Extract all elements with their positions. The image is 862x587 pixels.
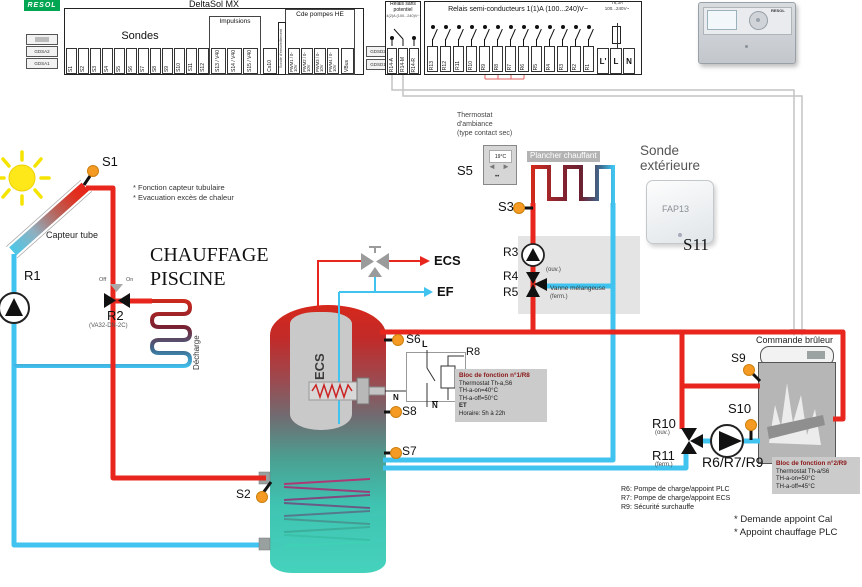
electric-heating-element bbox=[309, 378, 406, 404]
footnote-line: * Demande appoint Cal bbox=[734, 513, 837, 526]
s7-label: S7 bbox=[402, 445, 417, 458]
r2-label: R2 bbox=[107, 309, 124, 323]
tank-heat-exchanger-coil bbox=[284, 479, 370, 546]
s10-label: S10 bbox=[728, 402, 751, 416]
relay-group-bracket bbox=[485, 75, 524, 79]
charge-pump-label: R6/R7/R9 bbox=[702, 455, 763, 470]
relay-legend: R6: Pompe de charge/appoint PLCR7: Pompe… bbox=[621, 486, 730, 512]
ef-label: EF bbox=[437, 285, 454, 299]
r5-label: R5 bbox=[503, 286, 518, 299]
s1-label: S1 bbox=[102, 155, 118, 169]
floor-heating-coil bbox=[533, 167, 613, 207]
r8-l-label: L bbox=[422, 340, 428, 350]
r4-note: (ouv.) bbox=[546, 267, 561, 274]
r14-changeover-icon bbox=[391, 29, 416, 46]
legend-line: R6: Pompe de charge/appoint PLC bbox=[621, 486, 730, 495]
note-line: * Evacuation excès de chaleur bbox=[133, 194, 234, 202]
r4-r5-mixing-valve-icon bbox=[526, 272, 547, 297]
s5-label: S5 bbox=[457, 164, 473, 178]
r10-note: (ouv.) bbox=[655, 430, 670, 437]
decharge-label: Décharge bbox=[193, 314, 202, 370]
bloc1-line: TH-a-on=40°C bbox=[459, 388, 543, 396]
legend-line: R7: Pompe de charge/appoint ECS bbox=[621, 495, 730, 504]
ef-arrow-icon bbox=[424, 287, 433, 297]
bloc2-line: TH-a-off=45°C bbox=[776, 484, 856, 492]
s6-sensor-dot bbox=[393, 335, 404, 346]
vanne-label: Vanne mélangeuse bbox=[550, 285, 606, 292]
s2-label: S2 bbox=[236, 488, 251, 501]
r4-label: R4 bbox=[503, 270, 518, 283]
collector-label: Capteur tube bbox=[46, 231, 98, 241]
r11-note: (ferm.) bbox=[655, 462, 673, 469]
s9-label: S9 bbox=[731, 352, 746, 365]
plancher-label: Plancher chauffant bbox=[527, 151, 600, 162]
bloc2-title: Bloc de fonction n°2/R9 bbox=[776, 460, 856, 468]
r3-label: R3 bbox=[503, 246, 518, 259]
piping-layer bbox=[0, 0, 862, 587]
sonde-ext-2: extérieure bbox=[640, 159, 700, 174]
sonde-ext-1: Sonde bbox=[640, 144, 679, 159]
footnote-line: * Appoint chauffage PLC bbox=[734, 526, 837, 539]
r5-note: (ferm.) bbox=[550, 294, 568, 301]
bloc2-line: Thermostat Th-a/S6 bbox=[776, 469, 856, 477]
thermostatic-mixing-valve-icon bbox=[361, 247, 389, 277]
piscine-title-1: CHAUFFAGE bbox=[150, 244, 269, 266]
thermostat-note-1: Thermostat bbox=[457, 112, 492, 120]
s3-sensor-dot bbox=[514, 203, 525, 214]
s1-sensor-dot bbox=[88, 166, 99, 177]
tank-port bbox=[259, 538, 270, 550]
r2-on-label: On bbox=[126, 277, 133, 283]
s7-sensor-dot bbox=[391, 448, 402, 459]
r1-pump-icon bbox=[0, 293, 29, 323]
r10-r11-valve-icon bbox=[681, 428, 703, 454]
thermostat-note-3: (type contact sec) bbox=[457, 130, 512, 138]
bloc2-line: TH-a-on=50°C bbox=[776, 476, 856, 484]
bloc1-note: Bloc de fonction n°1/R8 Thermostat Th-a,… bbox=[455, 369, 547, 422]
bloc2-note: Bloc de fonction n°2/R9 Thermostat Th-a/… bbox=[772, 457, 860, 494]
footnotes: * Demande appoint Cal* Appoint chauffage… bbox=[734, 513, 837, 539]
piscine-title-2: PISCINE bbox=[150, 268, 226, 290]
r2-valve-icon bbox=[104, 284, 130, 308]
ecs-arrow-icon bbox=[420, 256, 430, 266]
r8-nbar-label: N bbox=[432, 401, 438, 411]
s10-sensor-dot bbox=[746, 420, 757, 431]
r8-n-label: N bbox=[393, 394, 399, 403]
r1-label: R1 bbox=[24, 269, 41, 283]
bloc1-et: ET bbox=[459, 403, 543, 411]
s11-label: S11 bbox=[683, 236, 709, 255]
r3-pump-icon bbox=[522, 244, 544, 266]
s8-sensor-dot bbox=[391, 407, 402, 418]
commande-bruleur-label: Commande brûleur bbox=[756, 336, 833, 346]
s9-sensor-dot bbox=[744, 365, 755, 376]
hydraulic-schematic: RESOL DeltaSol MX GDSA2 GDSA1 Sondes Imp… bbox=[0, 0, 862, 587]
r2-off-label: Off bbox=[99, 277, 106, 283]
s2-sensor-dot bbox=[257, 492, 268, 503]
bloc1-horaire: Horaire: 5h à 22h bbox=[459, 411, 543, 419]
r8-label: R8 bbox=[466, 346, 480, 358]
s3-label: S3 bbox=[498, 200, 514, 214]
sun-icon bbox=[0, 152, 49, 204]
s6-label: S6 bbox=[406, 333, 421, 346]
boiler-charge-pump-icon bbox=[711, 425, 743, 457]
s8-label: S8 bbox=[402, 405, 417, 418]
ecs-out-label: ECS bbox=[434, 254, 461, 268]
solar-collector bbox=[7, 180, 92, 257]
thermostat-note-2: d'ambiance bbox=[457, 121, 493, 129]
discharge-coil bbox=[14, 301, 190, 366]
bloc1-title: Bloc de fonction n°1/R8 bbox=[459, 372, 543, 380]
bloc1-line: TH-a-off=50°C bbox=[459, 396, 543, 404]
legend-line: R9: Sécurité surchauffe bbox=[621, 504, 730, 513]
note-line: * Fonction capteur tubulaire bbox=[133, 184, 225, 192]
r2-model: (VA32-DN-2C) bbox=[89, 323, 128, 330]
bloc1-line: Thermostat Th-a,S6 bbox=[459, 381, 543, 389]
